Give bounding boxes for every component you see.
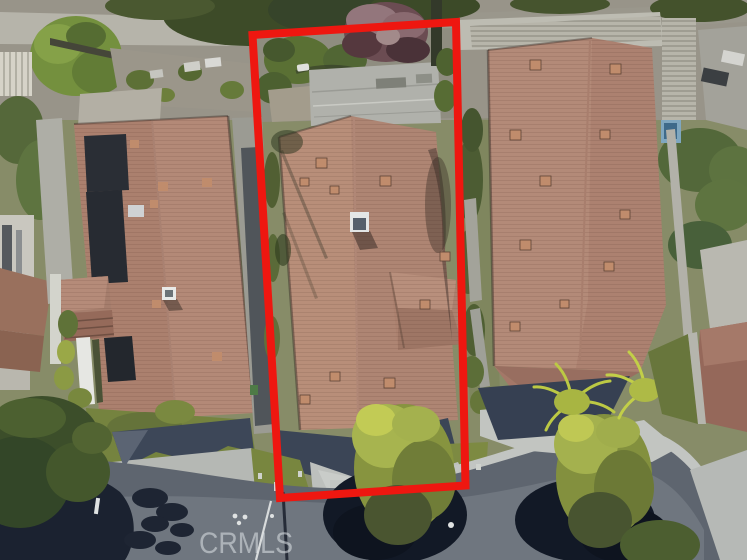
svg-text:CRMLS: CRMLS — [199, 527, 293, 560]
